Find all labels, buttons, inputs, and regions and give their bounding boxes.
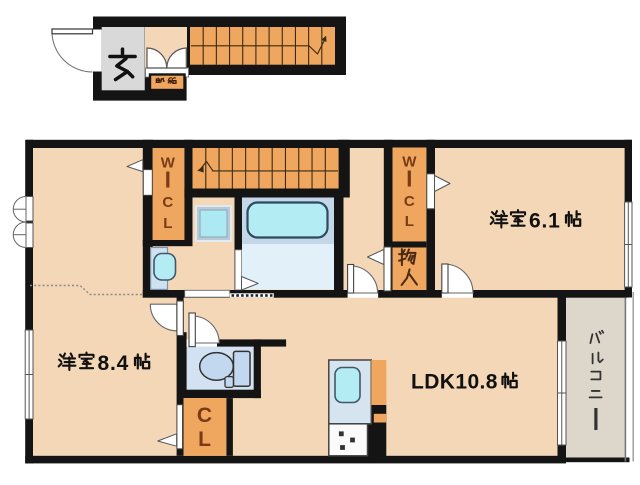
svg-text:LDK10.8: LDK10.8 <box>411 371 498 394</box>
svg-text:C: C <box>162 194 173 211</box>
svg-text:8.4: 8.4 <box>98 352 130 375</box>
svg-text:L: L <box>405 213 414 230</box>
svg-text:L: L <box>198 428 211 451</box>
svg-text:6.1: 6.1 <box>529 210 561 233</box>
svg-text:W: W <box>402 154 417 171</box>
svg-text:L: L <box>163 215 172 232</box>
svg-text:W: W <box>161 155 176 172</box>
svg-text:C: C <box>197 404 212 427</box>
svg-text:C: C <box>404 193 415 210</box>
